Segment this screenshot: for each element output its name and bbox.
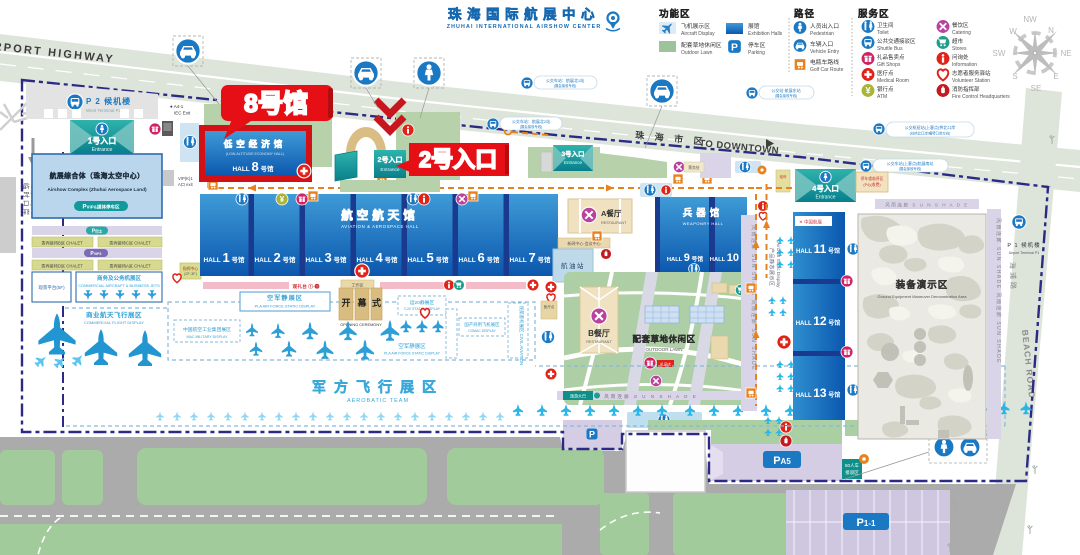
svg-text:Entrance: Entrance xyxy=(380,167,400,173)
svg-text:(往拱北口岸/横琴口岸方向): (往拱北口岸/横琴口岸方向) xyxy=(910,131,951,136)
svg-text:Catering: Catering xyxy=(952,30,971,36)
svg-text:Entrance: Entrance xyxy=(564,160,583,165)
svg-text:观景平台(5F): 观景平台(5F) xyxy=(38,284,65,291)
svg-text:(展会接驳专线): (展会接驳专线) xyxy=(520,124,543,129)
svg-text:Shuttle Bus: Shuttle Bus xyxy=(877,46,903,52)
svg-text:空军静展区: 空军静展区 xyxy=(267,294,303,302)
svg-text:公交车站：航展北1站: 公交车站：航展北1站 xyxy=(546,77,584,83)
svg-text:配套草地休闲区: 配套草地休闲区 xyxy=(632,334,695,344)
svg-text:Pedestrian: Pedestrian xyxy=(810,31,834,37)
svg-text:3号入口: 3号入口 xyxy=(561,149,584,158)
svg-text:● A4-1: ● A4-1 xyxy=(170,104,184,109)
svg-text:A餐厅: A餐厅 xyxy=(601,208,622,218)
svg-text:国产商用飞机展区: 国产商用飞机展区 xyxy=(464,321,500,328)
svg-text:P 2 候机楼: P 2 候机楼 xyxy=(86,96,131,106)
svg-text:Fire Control Headquarters: Fire Control Headquarters xyxy=(952,94,1010,100)
svg-text:A口 exit: A口 exit xyxy=(178,182,193,187)
svg-text:OUTDOOR LAWN: OUTDOOR LAWN xyxy=(645,347,682,352)
svg-text:P1-1: P1-1 xyxy=(857,517,876,529)
svg-text:(LOW-ALTITUDE ECONOMY HALL): (LOW-ALTITUDE ECONOMY HALL) xyxy=(226,152,284,156)
svg-text:IEC Exit: IEC Exit xyxy=(174,111,191,116)
svg-text:COMMERCIAL FLIGHT DISPLAY: COMMERCIAL FLIGHT DISPLAY xyxy=(84,320,144,325)
svg-text:贵宾接待A区 CHALET: 贵宾接待A区 CHALET xyxy=(109,263,151,270)
svg-text:Medical Room: Medical Room xyxy=(877,78,909,84)
svg-text:Parking: Parking xyxy=(748,50,765,56)
svg-text:中国航空工业集团展区: 中国航空工业集团展区 xyxy=(183,326,231,333)
svg-text:风雨连廊 SUN SHADE 风雨连廊 SUN SHADE: 风雨连廊 SUN SHADE 风雨连廊 SUN SHADE xyxy=(995,218,1002,364)
svg-text:旅游大巴: 旅游大巴 xyxy=(570,393,586,399)
svg-text:E: E xyxy=(1053,72,1058,81)
svg-text:ZHUHAI INTERNATIONAL AIRSHOW C: ZHUHAI INTERNATIONAL AIRSHOW CENTER xyxy=(447,24,602,30)
svg-text:风雨连廊 S U N S H A D E: 风雨连廊 S U N S H A D E xyxy=(604,393,698,400)
svg-text:PLA AIR FORCE STATIC DISPLAY: PLA AIR FORCE STATIC DISPLAY xyxy=(384,352,441,356)
svg-text:低空经济馆: 低空经济馆 xyxy=(223,139,287,149)
svg-text:民航客机展区 CIVIL AVIATION: 民航客机展区 CIVIL AVIATION xyxy=(518,306,525,365)
svg-text:NE: NE xyxy=(1060,49,1071,58)
svg-text:B餐厅: B餐厅 xyxy=(588,328,610,338)
svg-text:幕: 幕 xyxy=(356,297,367,308)
svg-text:P 1 候机楼: P 1 候机楼 xyxy=(1007,241,1040,249)
svg-text:Vehicle Entry: Vehicle Entry xyxy=(810,49,840,55)
svg-text:指挥中心: 指挥中心 xyxy=(183,266,198,271)
svg-text:Golf Car Route: Golf Car Route xyxy=(810,67,844,73)
svg-text:装备演示区: 装备演示区 xyxy=(895,279,949,291)
svg-text:(展会接驳专线): (展会接驳专线) xyxy=(775,93,798,98)
svg-text:SW: SW xyxy=(993,49,1006,58)
svg-text:服务区: 服务区 xyxy=(858,8,890,20)
svg-text:N: N xyxy=(1048,26,1054,35)
svg-text:产品静态展示区: 产品静态展示区 xyxy=(768,248,775,287)
svg-text:PVIP&媒体停车区: PVIP&媒体停车区 xyxy=(82,204,120,211)
svg-text:COMAC DISPLAY: COMAC DISPLAY xyxy=(468,329,496,333)
svg-text:风雨连廊 S U N S H A D E: 风雨连廊 S U N S H A D E xyxy=(885,202,969,209)
svg-text:RESTAURANT: RESTAURANT xyxy=(601,221,627,225)
svg-text:(展会接驳专线): (展会接驳专线) xyxy=(899,166,922,171)
svg-text:问询处: 问询处 xyxy=(952,53,969,61)
svg-text:开: 开 xyxy=(341,298,350,308)
svg-text:超市: 超市 xyxy=(952,37,964,45)
svg-text:VIP(K)1: VIP(K)1 xyxy=(178,176,193,181)
svg-text:卫生间: 卫生间 xyxy=(877,21,894,29)
svg-text:航油站: 航油站 xyxy=(561,261,585,270)
svg-text:商务及公务机展区: 商务及公务机展区 xyxy=(97,274,142,282)
svg-text:军方飞行展区: 军方飞行展区 xyxy=(312,379,444,395)
svg-text:Exhibition Halls: Exhibition Halls xyxy=(748,31,783,37)
svg-text:Aircraft Display: Aircraft Display xyxy=(681,31,715,37)
svg-text:ATM: ATM xyxy=(877,94,887,100)
svg-text:Ground Equipment Maneuver Demo: Ground Equipment Maneuver Demonstration … xyxy=(878,294,968,299)
svg-text:观礼台 ①-❿: 观礼台 ①-❿ xyxy=(293,283,320,290)
svg-text:停车区: 停车区 xyxy=(748,41,766,49)
svg-text:配套草地休闲区: 配套草地休闲区 xyxy=(681,41,722,49)
svg-text:AVIATION & AEROSPACE HALL: AVIATION & AEROSPACE HALL xyxy=(341,224,419,229)
svg-text:Outdoor Lawn: Outdoor Lawn xyxy=(681,50,713,56)
svg-text:Gift Shops: Gift Shops xyxy=(877,62,901,68)
svg-text:S: S xyxy=(1012,72,1017,81)
svg-text:工作区: 工作区 xyxy=(352,282,364,288)
svg-text:公交车站：航展北2站: 公交车站：航展北2站 xyxy=(512,118,550,124)
svg-text:志愿者服务驿站: 志愿者服务驿站 xyxy=(952,69,991,77)
svg-text:PA5: PA5 xyxy=(773,455,791,467)
svg-text:8号馆: 8号馆 xyxy=(244,89,308,118)
svg-text:空军静展区: 空军静展区 xyxy=(398,342,426,350)
svg-text:临停: 临停 xyxy=(780,174,787,179)
svg-text:OPENING CEREMONY: OPENING CEREMONY xyxy=(340,322,382,327)
svg-text:餐饮区: 餐饮区 xyxy=(952,21,969,29)
svg-text:展馆: 展馆 xyxy=(748,22,760,30)
svg-text:礼品售卖点: 礼品售卖点 xyxy=(877,53,905,61)
svg-text:珠海国际航展中心: 珠海国际航展中心 xyxy=(448,6,600,22)
svg-text:公交车站(上客点)航展南站: 公交车站(上客点)航展南站 xyxy=(887,160,934,166)
svg-text:(展会接驳专线): (展会接驳专线) xyxy=(554,83,577,88)
svg-text:票务处: 票务处 xyxy=(688,165,700,170)
svg-text:W: W xyxy=(1009,27,1017,36)
svg-text:医疗点: 医疗点 xyxy=(877,69,894,77)
svg-text:航空航天馆: 航空航天馆 xyxy=(341,208,419,222)
svg-text:PLA AIR FORCE STATIC DISPLAY: PLA AIR FORCE STATIC DISPLAY xyxy=(255,304,316,309)
svg-text:消防指挥部: 消防指挥部 xyxy=(952,85,980,93)
svg-text:公共交通接驳区: 公共交通接驳区 xyxy=(877,37,916,45)
svg-text:车辆入口: 车辆入口 xyxy=(810,40,833,48)
svg-text:1号入口: 1号入口 xyxy=(88,137,116,146)
svg-text:兵器馆: 兵器馆 xyxy=(683,207,724,219)
svg-text:Entrance: Entrance xyxy=(92,147,113,153)
svg-text:Information: Information xyxy=(952,62,977,68)
svg-text:SE: SE xyxy=(1031,84,1042,93)
svg-text:贵宾接待C区 CHALET: 贵宾接待C区 CHALET xyxy=(109,240,151,247)
svg-text:Airshow Complex (Zhuhai Aerosp: Airshow Complex (Zhuhai Aerospace Land) xyxy=(47,187,147,193)
svg-text:式: 式 xyxy=(372,297,381,308)
svg-text:Toilet: Toilet xyxy=(877,30,889,36)
svg-text:Volunteer Station: Volunteer Station xyxy=(952,78,990,84)
svg-text:2号入口: 2号入口 xyxy=(419,147,497,172)
svg-text:Entrance: Entrance xyxy=(815,195,835,201)
svg-text:公交枢纽站(上客点)拱北口岸: 公交枢纽站(上客点)拱北口岸 xyxy=(905,124,956,130)
svg-text:✕ 中国航展: ✕ 中国航展 xyxy=(799,219,823,226)
svg-text:电瓶车路线: 电瓶车路线 xyxy=(810,58,839,66)
svg-text:航展综合体（珠海太空中心）: 航展综合体（珠海太空中心） xyxy=(50,171,145,180)
svg-text:MAC MILITARY DISPLAY: MAC MILITARY DISPLAY xyxy=(186,335,228,339)
svg-text:功能区: 功能区 xyxy=(659,8,691,20)
svg-text:贵宾接待B区 CHALET: 贵宾接待B区 CHALET xyxy=(41,240,83,247)
svg-text:医疗点: 医疗点 xyxy=(544,304,555,309)
svg-text:4号入口: 4号入口 xyxy=(812,184,839,193)
svg-text:2号入口: 2号入口 xyxy=(378,155,403,164)
svg-text:West Terminal P2: West Terminal P2 xyxy=(86,108,122,113)
svg-text:公交站·航展东站: 公交站·航展东站 xyxy=(771,87,800,93)
svg-text:(2F-3F): (2F-3F) xyxy=(184,272,197,276)
svg-text:飞机展示区: 飞机展示区 xyxy=(681,22,710,30)
svg-text:贵宾接待D区 CHALET: 贵宾接待D区 CHALET xyxy=(41,263,83,270)
svg-text:AEROBATIC TEAM: AEROBATIC TEAM xyxy=(347,398,409,404)
svg-text:RESTAURANT: RESTAURANT xyxy=(586,340,612,344)
svg-text:50人车: 50人车 xyxy=(845,462,860,469)
svg-text:WEAPONRY HALL: WEAPONRY HALL xyxy=(683,221,724,226)
svg-text:(P4)(收费): (P4)(收费) xyxy=(863,182,881,187)
svg-text:停车楼临停区: 停车楼临停区 xyxy=(861,176,884,181)
svg-text:Airport Terminal P1: Airport Terminal P1 xyxy=(1009,251,1040,255)
svg-text:Stores: Stores xyxy=(952,46,967,52)
svg-text:路径: 路径 xyxy=(794,8,815,20)
svg-text:商业航天飞行展区: 商业航天飞行展区 xyxy=(86,310,142,319)
svg-text:人员出入口: 人员出入口 xyxy=(810,22,839,30)
svg-text:银行点: 银行点 xyxy=(877,85,894,93)
svg-text:运20静展区: 运20静展区 xyxy=(410,299,435,306)
svg-text:COMMERCIAL AIRCRAFT & BUSINESS: COMMERCIAL AIRCRAFT & BUSINESS JETS xyxy=(78,283,160,288)
svg-text:NW: NW xyxy=(1023,15,1037,24)
